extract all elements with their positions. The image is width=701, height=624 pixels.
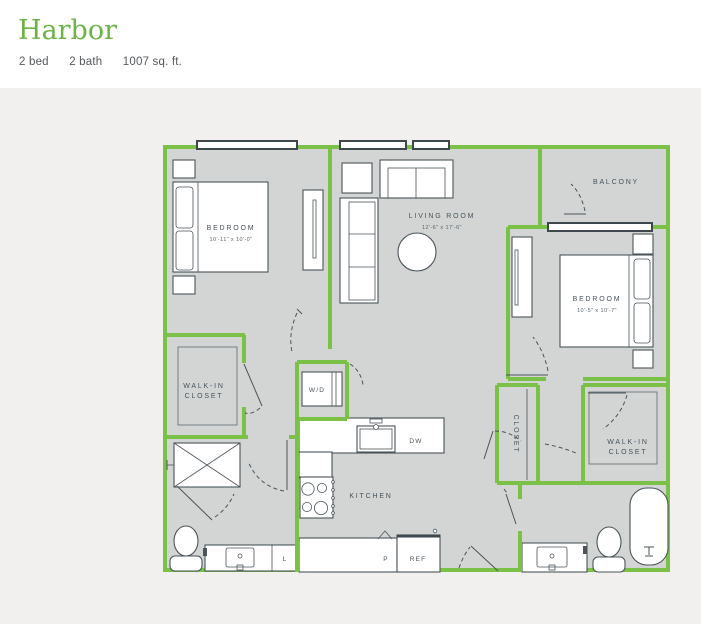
linen-label: L bbox=[283, 556, 288, 563]
burner bbox=[302, 502, 311, 511]
living-room-label: LIVING ROOM bbox=[409, 213, 475, 220]
sofa bbox=[340, 198, 378, 303]
unit-specs: 2 bed 2 bath 1007 sq. ft. bbox=[19, 56, 199, 68]
round-table bbox=[398, 233, 436, 271]
window bbox=[413, 141, 449, 149]
counter bbox=[299, 452, 332, 478]
pillow bbox=[634, 303, 650, 343]
pillow bbox=[176, 231, 193, 270]
nightstand bbox=[173, 276, 195, 294]
bedroom1-dims: 10'-11" x 10'-0" bbox=[210, 237, 253, 243]
walk-in-closet1-label: WALK-IN bbox=[183, 383, 225, 390]
toilet bbox=[597, 527, 621, 557]
loveseat bbox=[380, 160, 453, 198]
closet-label: CLOSET bbox=[512, 415, 519, 454]
pillow bbox=[634, 259, 650, 299]
pillow bbox=[176, 187, 193, 228]
spec-beds: 2 bed bbox=[19, 56, 49, 68]
dishwasher-label: DW bbox=[409, 438, 422, 445]
laundry-label: W/D bbox=[309, 387, 325, 394]
window bbox=[197, 141, 297, 149]
burner bbox=[317, 483, 326, 492]
bedroom1-label: BEDROOM bbox=[207, 225, 256, 232]
burner bbox=[314, 501, 327, 514]
towel-bar bbox=[203, 548, 207, 556]
walk-in-closet2-label: WALK-IN bbox=[607, 439, 649, 446]
refrigerator bbox=[397, 535, 440, 572]
nightstand bbox=[173, 160, 195, 178]
page-title: Harbor bbox=[18, 16, 117, 46]
header: Harbor 2 bed 2 bath 1007 sq. ft. bbox=[0, 0, 701, 88]
faucet-icon bbox=[370, 419, 382, 423]
svg-text:CLOSET: CLOSET bbox=[185, 393, 224, 400]
towel-bar bbox=[583, 546, 587, 554]
window bbox=[340, 141, 406, 149]
window bbox=[548, 223, 652, 231]
side-table bbox=[342, 163, 372, 193]
bedroom2-label: BEDROOM bbox=[573, 296, 622, 303]
bedroom2-dims: 10'-5" x 10'-7" bbox=[577, 308, 617, 314]
floorplan-drawing: BEDROOM 10'-11" x 10'-0" LIVING ROOM 12'… bbox=[0, 88, 701, 624]
balcony-label: BALCONY bbox=[593, 179, 639, 186]
pantry-label: P bbox=[383, 556, 389, 563]
toilet bbox=[174, 526, 198, 556]
spec-area: 1007 sq. ft. bbox=[123, 56, 182, 68]
living-room-dims: 12'-6" x 17'-6" bbox=[422, 225, 462, 231]
nightstand bbox=[633, 350, 653, 368]
kitchen-label: KITCHEN bbox=[349, 493, 392, 500]
counter-pantry bbox=[299, 538, 397, 572]
burner bbox=[302, 483, 314, 495]
svg-text:CLOSET: CLOSET bbox=[609, 449, 648, 456]
refrigerator-label: REF bbox=[410, 556, 427, 563]
nightstand bbox=[633, 234, 653, 254]
spec-baths: 2 bath bbox=[69, 56, 102, 68]
